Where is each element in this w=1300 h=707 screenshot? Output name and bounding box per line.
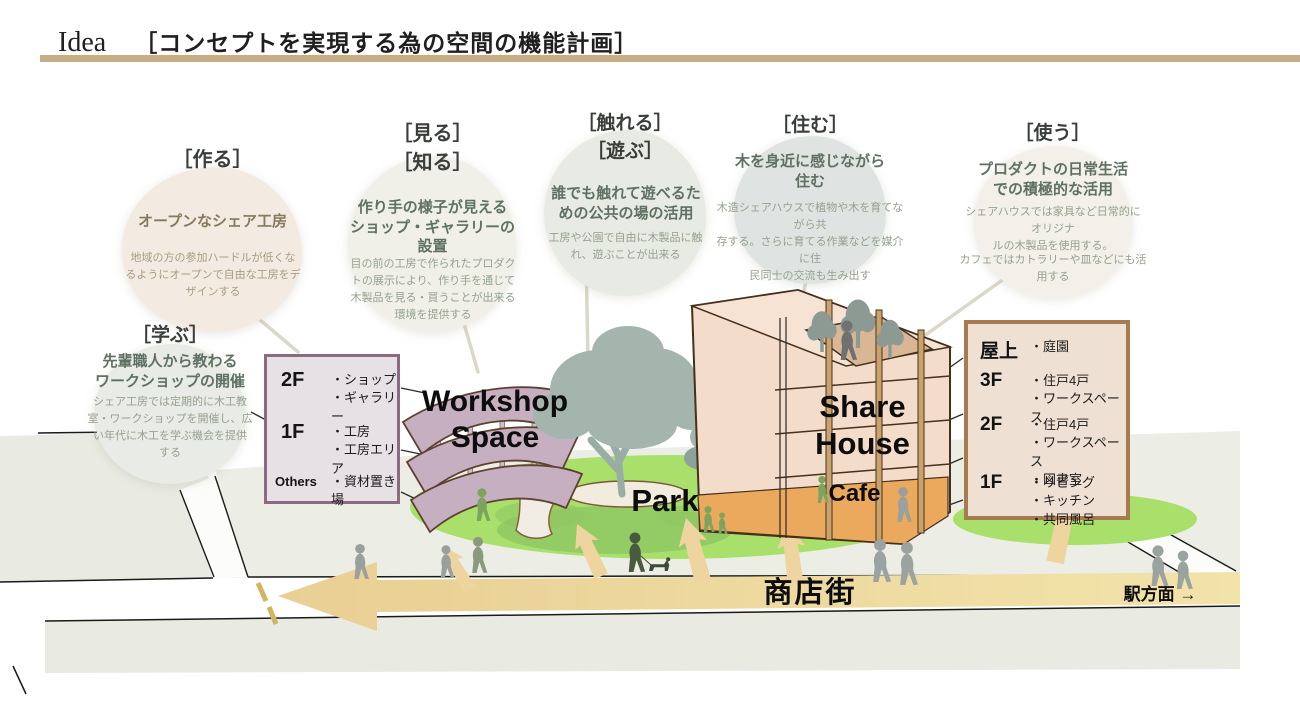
floor-items: ・リビング ・キッチン ・共同風呂 [1030, 472, 1095, 529]
floor-label: 屋上 [980, 336, 1030, 363]
floor-items: ・庭園 [1030, 336, 1069, 356]
bubble-use-body2: カフェではカトラリーや皿などにも活用する [955, 252, 1151, 286]
floor-label: 2F [281, 369, 331, 392]
station-direction-label: 駅方面 → [1095, 585, 1225, 605]
floor-items: ・資材置き場 [331, 471, 397, 510]
floor-items: ・ショップ ・ギャラリー [331, 369, 397, 426]
sharehouse-label: Share House [770, 388, 955, 462]
page-header: Idea［コンセプトを実現する為の空間の機能計画］ [58, 24, 638, 59]
floor-label: 1F [980, 472, 1030, 494]
floor-label: 2F [980, 414, 1030, 436]
bubble-learn-heading: 先輩職人から教わる ワークショップの開催 [80, 352, 260, 391]
workshop-floor-box: 2F ・ショップ ・ギャラリー 1F ・工房 ・工房エリア Others ・資材… [264, 354, 400, 504]
bubble-see-tag: ［見る］ ［知る］ [355, 120, 510, 178]
workshop-label: Workshop Space [400, 384, 590, 456]
bubble-make-tag: ［作る］ [120, 146, 305, 175]
bubble-learn-body: シェア工房では定期的に木工教 室・ワークショップを開催し、広 い年代に木工を学ぶ… [85, 394, 255, 462]
shopping-street-label: 商店街 [735, 576, 885, 611]
bubble-touch-body: 工房や公園で自由に木製品に触 れ、遊ぶことが出来る [538, 230, 713, 264]
floor-label: Others [275, 471, 331, 489]
sharehouse-floor-box: 屋上 ・庭園 3F ・住戸4戸 ・ワークスペース 2F ・住戸4戸 ・ワークスペ… [964, 320, 1130, 520]
title-underline [40, 55, 1300, 62]
floor-label: 1F [281, 421, 331, 444]
floor-label: 3F [980, 370, 1030, 392]
bubble-use-heading: プロダクトの日常生活 での積極的な活用 [968, 160, 1138, 199]
bubble-learn-tag: ［学ぶ］ [95, 322, 245, 350]
floor-items: ・工房 ・工房エリア [331, 421, 397, 478]
concept-diagram-slide: ［作る］ オープンなシェア工房 地域の方の参加ハードルが低くな るようにオープン… [0, 0, 1300, 707]
bubble-make-body: 地域の方の参加ハードルが低くな るようにオープンで自由な工房をデ ザインする [118, 250, 308, 301]
bubble-use-body: シェアハウスでは家具など日常的にオリジナ ルの木製品を使用する。 [960, 204, 1146, 255]
bubble-see-body: 目の前の工房で作られたプロダク トの展示により、作り手を通じて 木製品を見る・買… [342, 256, 524, 324]
cafe-label: Cafe [812, 480, 897, 509]
page-title-subtitle: ［コンセプトを実現する為の空間の機能計画］ [134, 30, 638, 56]
bubble-make-heading: オープンなシェア工房 [120, 212, 305, 232]
park-label: Park [610, 482, 720, 519]
bubble-live-tag: ［住む］ [735, 112, 885, 140]
block-bottom [45, 606, 1240, 673]
bubble-touch-heading: 誰でも触れて遊べるた めの公共の場の活用 [542, 184, 710, 223]
bubble-use-tag: ［使う］ [975, 120, 1130, 148]
bubble-touch-tag: ［触れる］ ［遊ぶ］ [545, 110, 705, 165]
bubble-see-heading: 作り手の様子が見える ショップ・ギャラリーの 設置 [345, 198, 520, 257]
bubble-live-body: 木造シェアハウスで植物や木を育てながら共 存する。さらに育てる作業などを媒介に住… [712, 200, 908, 285]
page-title-word: Idea [58, 27, 106, 58]
bubble-live-heading: 木を身近に感じながら 住む [730, 152, 890, 191]
